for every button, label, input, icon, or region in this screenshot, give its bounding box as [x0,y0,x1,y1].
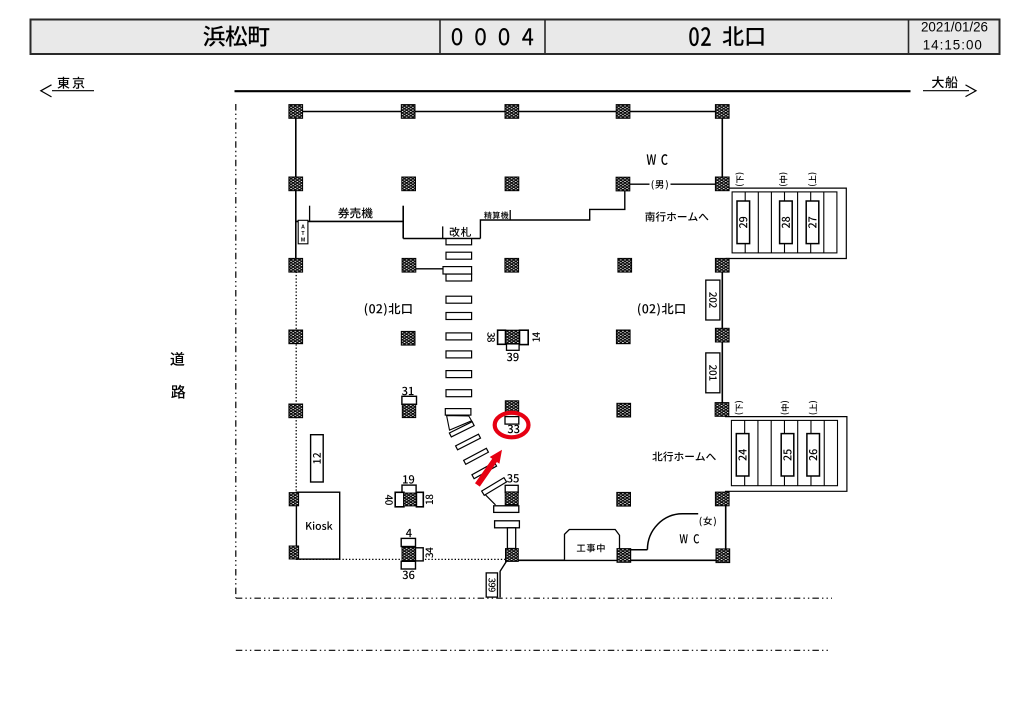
svg-text:A: A [301,224,305,230]
svg-text:14:15:00: 14:15:00 [923,37,983,52]
svg-text:M: M [301,238,305,244]
svg-text:2021/01/26: 2021/01/26 [921,20,988,35]
